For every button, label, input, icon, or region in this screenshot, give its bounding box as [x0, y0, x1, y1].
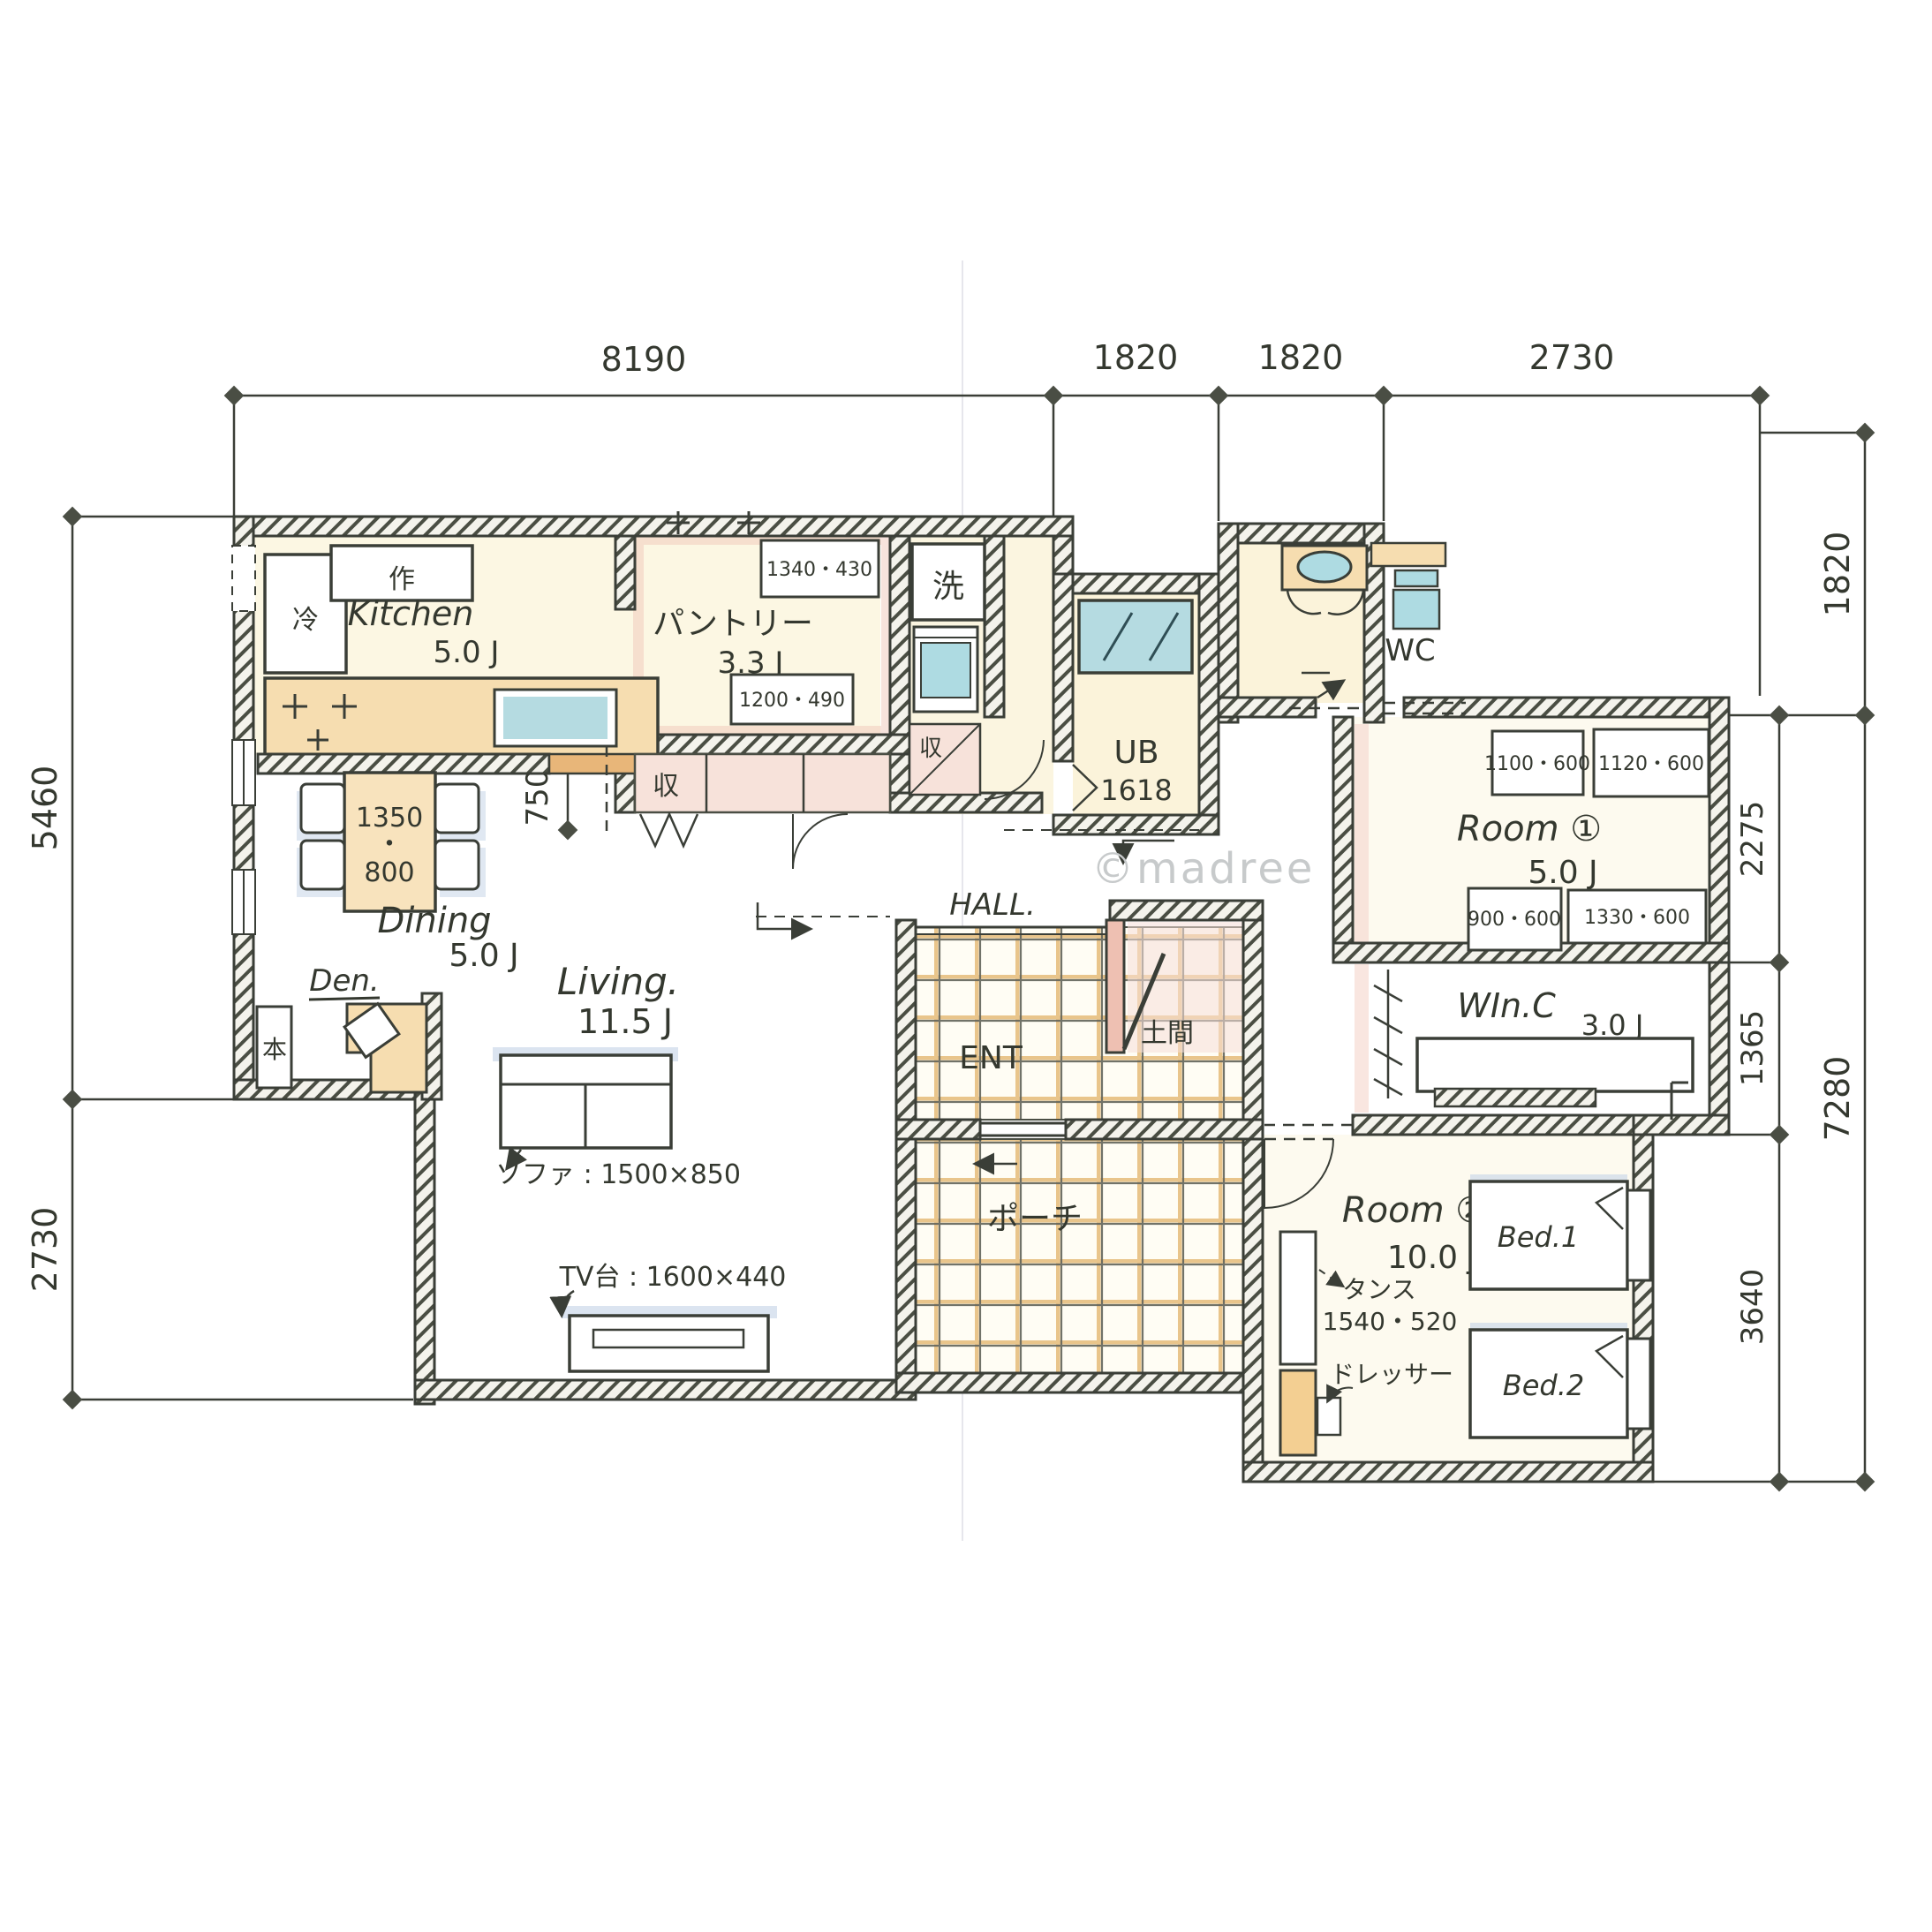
pantry-shelf-1-label: 1340・430	[766, 559, 872, 581]
watermark: ©madree	[1091, 844, 1315, 894]
bath-label: UB	[1113, 735, 1158, 771]
tv-label: TV台 : 1600×440	[559, 1262, 787, 1293]
washer-label: 洗	[932, 569, 964, 605]
bed-1-headboard	[1627, 1190, 1650, 1280]
bed-2-headboard	[1627, 1339, 1650, 1429]
bed1-label: Bed.1	[1498, 1220, 1579, 1254]
tansu-label: タンス	[1342, 1275, 1415, 1304]
dim-right-7280: 7280	[1818, 1056, 1857, 1142]
porch-label: ポーチ	[987, 1201, 1083, 1237]
dim-right-3640: 3640	[1735, 1269, 1770, 1346]
dresser-stool	[1317, 1398, 1340, 1435]
room1-size: 5.0 J	[1528, 855, 1597, 891]
floorplan-drawing: 8190 1820 1820 2730 5460 2730 1820 7280 …	[0, 0, 1932, 1932]
tansu-size: 1540・520	[1323, 1307, 1458, 1336]
work-counter-label: 作	[389, 564, 415, 595]
dim-top-8190: 8190	[601, 340, 687, 379]
room1-closet-2-label: 1120・600	[1598, 753, 1704, 775]
doma-label: 土間	[1141, 1018, 1194, 1049]
fridge-label: 冷	[292, 605, 319, 636]
wic-rod	[1417, 1038, 1693, 1091]
room1-closet-4-label: 1330・600	[1584, 907, 1690, 929]
kitchen-label: Kitchen	[348, 594, 474, 633]
room1-label: Room ①	[1457, 809, 1602, 849]
wic-label: WIn.C	[1457, 986, 1556, 1025]
bath-size: 1618	[1100, 774, 1172, 807]
dim-left-5460: 5460	[26, 766, 64, 851]
dim-right-1820: 1820	[1818, 532, 1857, 617]
dim-left-2730: 2730	[26, 1207, 64, 1293]
tansu	[1280, 1232, 1316, 1364]
sofa-label: ソファ : 1500×850	[495, 1159, 741, 1190]
dim-right-1365: 1365	[1735, 1010, 1770, 1087]
toilet	[1393, 590, 1439, 629]
dining-table-sep: ・	[376, 829, 403, 860]
den-label: Den.	[309, 963, 379, 999]
dim-kitchen-750: 750	[520, 769, 555, 826]
dining-table-d: 800	[364, 857, 414, 888]
dining-size: 5.0 J	[449, 938, 518, 974]
kitchen-size: 5.0 J	[434, 635, 500, 670]
pantry-label: パントリー	[653, 606, 813, 642]
dining-label: Dining	[377, 901, 491, 941]
bed2-label: Bed.2	[1503, 1369, 1584, 1402]
pantry-shelf-2-label: 1200・490	[739, 690, 845, 712]
fridge-window	[232, 546, 255, 611]
dim-right-2275: 2275	[1735, 801, 1770, 878]
dim-top-1820a: 1820	[1093, 338, 1179, 377]
wc-shelf	[1371, 543, 1445, 566]
hall-label: HALL.	[949, 887, 1036, 923]
dim-top-1820b: 1820	[1258, 338, 1344, 377]
dresser	[1280, 1370, 1316, 1455]
room2-size: 10.0 J	[1387, 1240, 1477, 1276]
living-size: 11.5 J	[577, 1002, 673, 1041]
floorplan-page: 8190 1820 1820 2730 5460 2730 1820 7280 …	[0, 0, 1932, 1932]
ent-label: ENT	[959, 1040, 1023, 1076]
dresser-label: ドレッサー	[1330, 1360, 1453, 1389]
bookshelf-label: 本	[262, 1035, 287, 1064]
room1-closet-1-label: 1100・600	[1484, 753, 1590, 775]
dim-top-2730: 2730	[1529, 338, 1615, 377]
room1-closet-3-label: 900・600	[1468, 909, 1561, 931]
storage-pantry-label: 収	[653, 771, 679, 802]
room2-label: Room ②	[1342, 1190, 1487, 1231]
living-label: Living.	[557, 960, 679, 1003]
bath-window	[1079, 600, 1192, 673]
storage-wash-label: 収	[919, 736, 942, 762]
wc-label: WC	[1385, 633, 1435, 668]
